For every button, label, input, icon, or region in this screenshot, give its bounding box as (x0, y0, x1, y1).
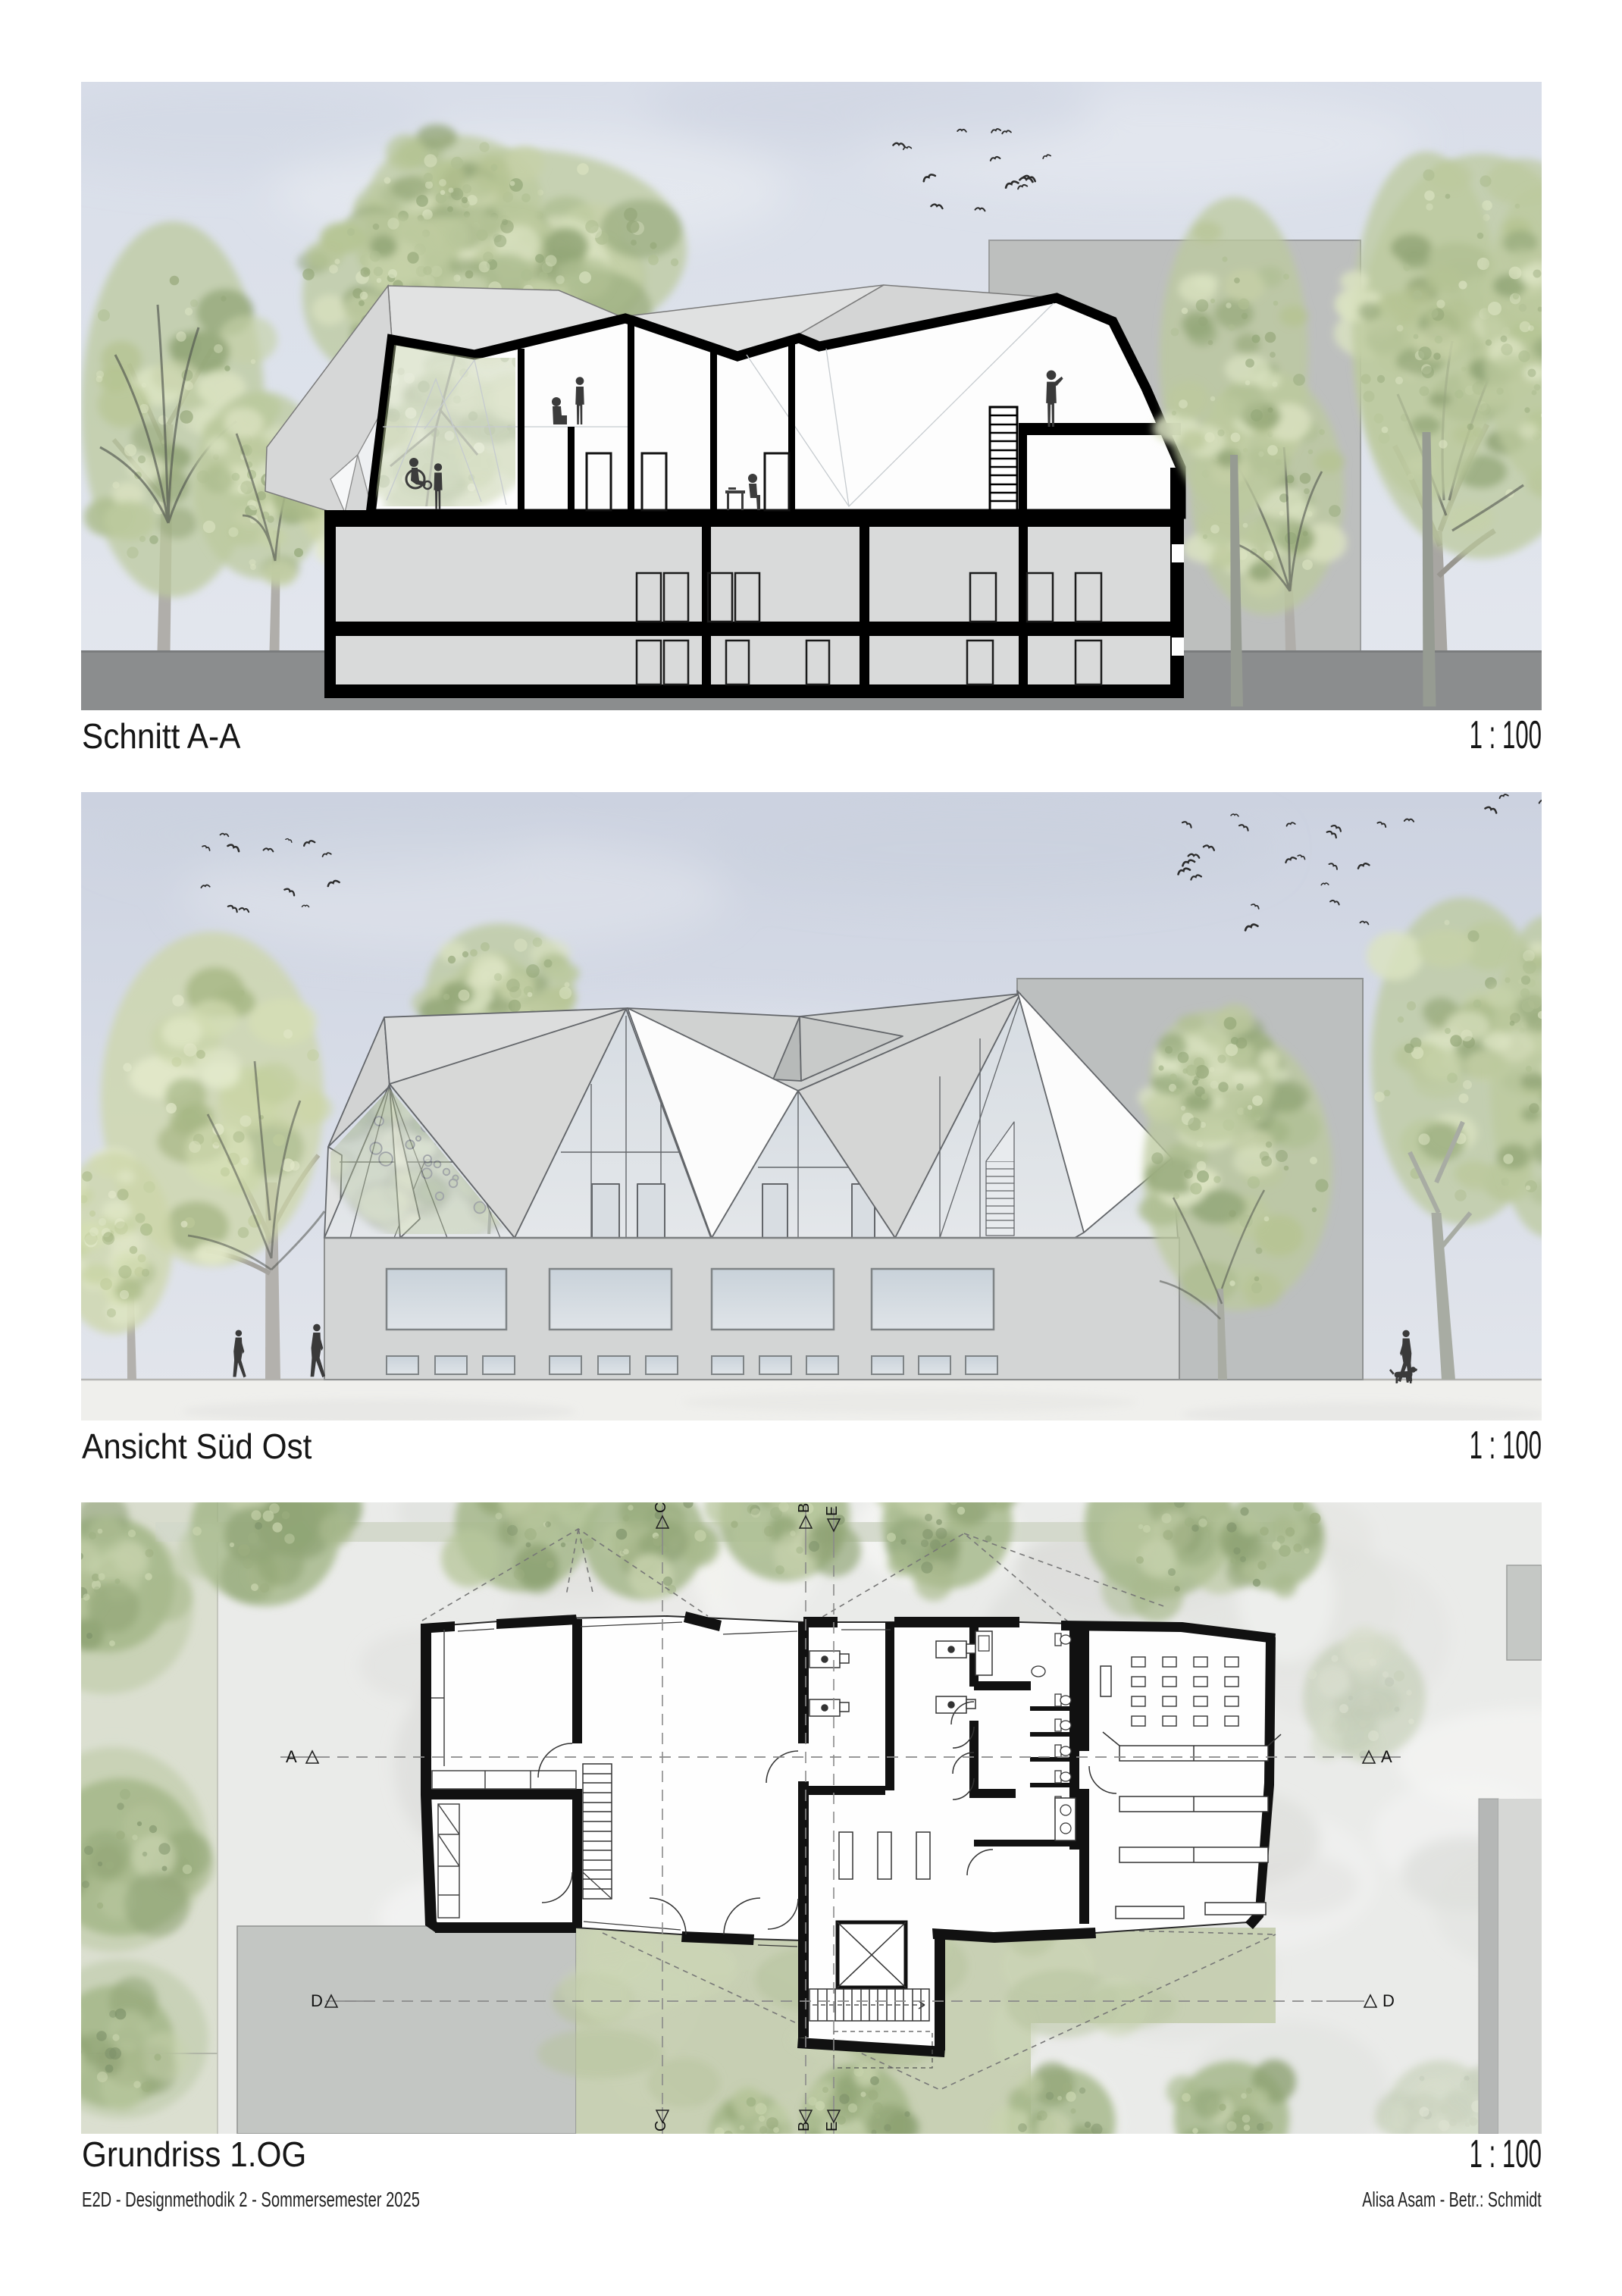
svg-text:D: D (1382, 1991, 1395, 2010)
svg-text:B: B (796, 1503, 813, 1513)
svg-text:B: B (796, 2122, 813, 2132)
svg-text:A: A (1381, 1747, 1392, 1766)
svg-text:A: A (286, 1747, 297, 1766)
svg-text:D: D (311, 1991, 323, 2010)
svg-text:E: E (824, 2122, 841, 2132)
svg-text:C: C (653, 2121, 669, 2132)
svg-text:E: E (824, 1506, 841, 1516)
svg-text:C: C (653, 1502, 669, 1513)
